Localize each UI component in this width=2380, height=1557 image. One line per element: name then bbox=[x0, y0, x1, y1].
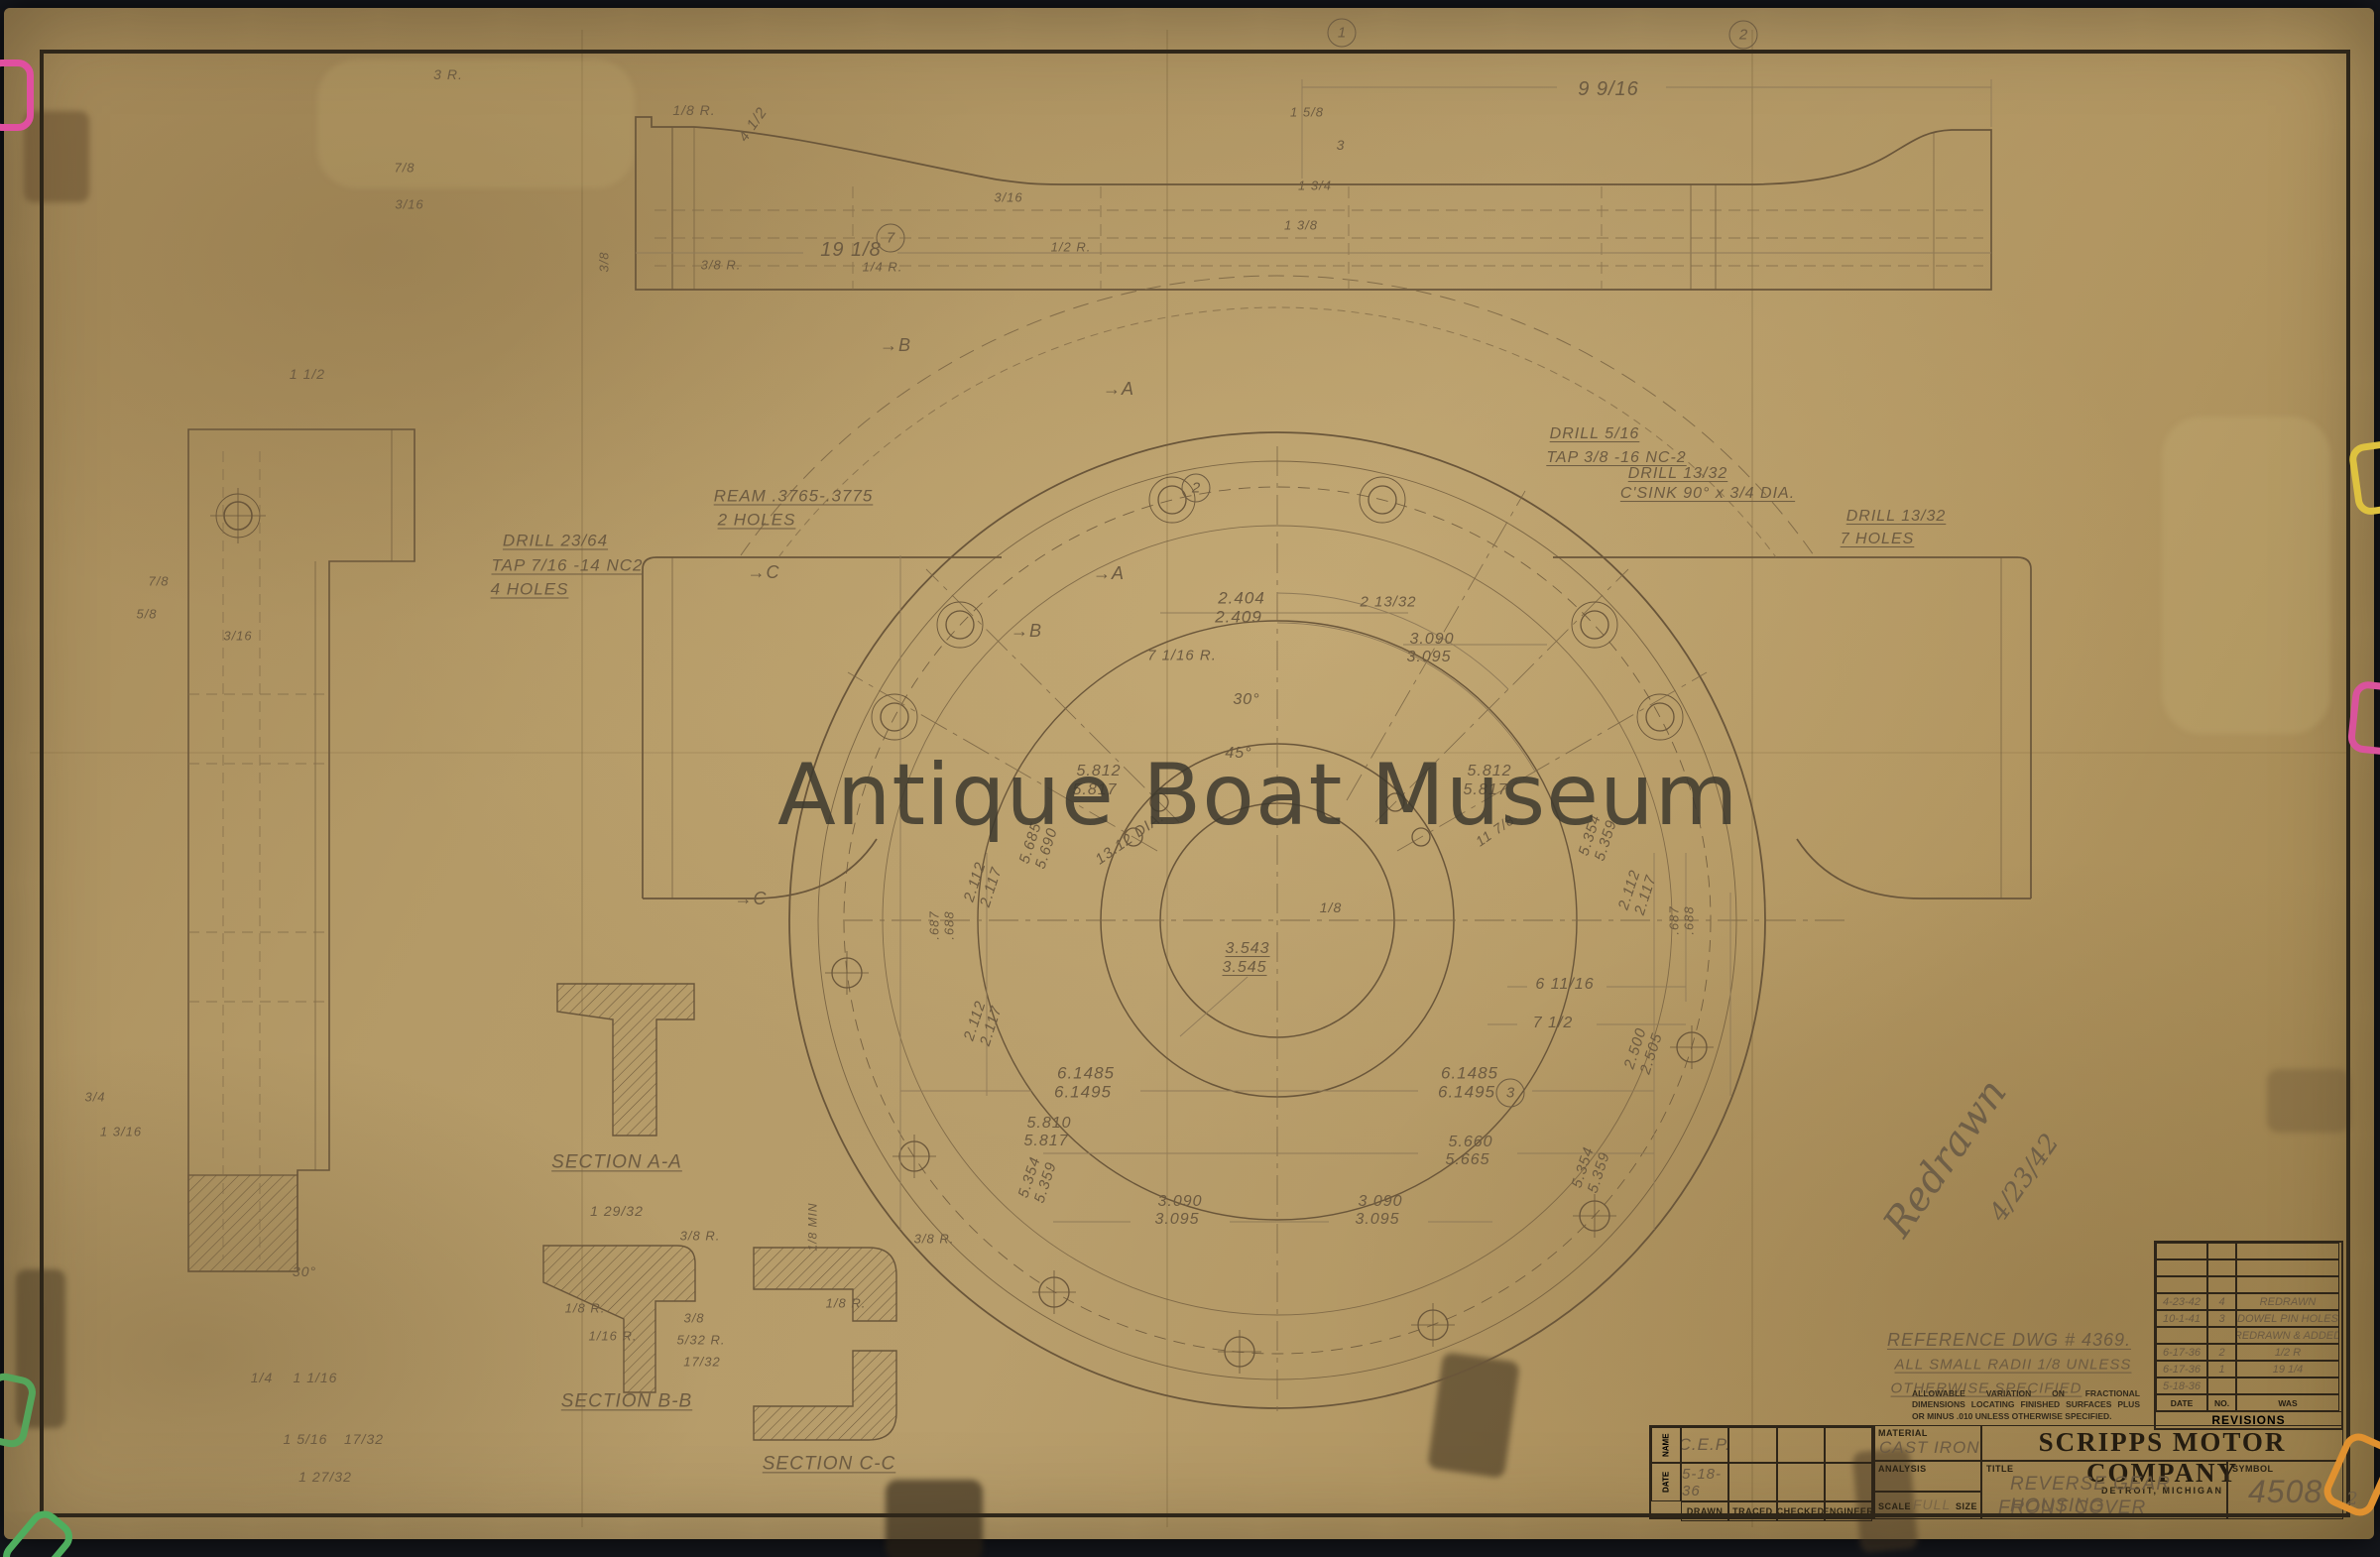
annotation-label: 5/8 bbox=[136, 608, 157, 623]
annotation-label: 1 1/16 bbox=[294, 1371, 338, 1386]
revision-cell: REDRAWN bbox=[2236, 1293, 2339, 1310]
annotation-label: →B bbox=[1011, 621, 1042, 641]
annotation-label: 1 3/8 bbox=[1284, 219, 1318, 234]
revision-cell bbox=[2156, 1259, 2207, 1276]
revision-cell bbox=[2236, 1276, 2339, 1293]
annotation-label: 3/16 bbox=[994, 191, 1022, 206]
annotation-label: 3 R. bbox=[433, 67, 463, 83]
revision-cell bbox=[2236, 1377, 2339, 1394]
balloon-reference: 2 bbox=[1182, 474, 1211, 503]
annotation-label: DRILL 5/16 bbox=[1550, 425, 1640, 443]
annotation-label: 1/2 R. bbox=[1051, 241, 1092, 256]
annotation-label: SECTION C-C bbox=[763, 1453, 896, 1474]
analysis-label: ANALYSIS bbox=[1878, 1464, 1927, 1474]
annotation-label: →A bbox=[1093, 563, 1125, 583]
annotation-label: .687 .688 bbox=[1667, 905, 1696, 934]
balloon-reference: 1 bbox=[1328, 19, 1357, 48]
section-c-c-detail bbox=[754, 1248, 896, 1440]
annotation-label: 2.404 bbox=[1218, 588, 1265, 607]
annotation-label: 1 5/16 bbox=[284, 1432, 328, 1448]
drawn-date: 5-18-36 bbox=[1681, 1463, 1728, 1501]
annotation-label: 1 27/32 bbox=[298, 1470, 352, 1486]
revision-cell: 3 bbox=[2207, 1310, 2236, 1327]
revision-cell: 6-17-36 bbox=[2156, 1344, 2207, 1361]
annotation-label: REAM .3765-.3775 bbox=[714, 486, 874, 505]
name-row-label: NAME bbox=[1651, 1427, 1681, 1463]
annotation-label: 1 1/2 bbox=[290, 367, 325, 383]
revision-header-cell: NO. bbox=[2207, 1394, 2236, 1411]
annotation-label: 1 29/32 bbox=[590, 1204, 644, 1220]
annotation-label: 3/16 bbox=[223, 630, 252, 645]
revision-cell bbox=[2207, 1259, 2236, 1276]
title-label: TITLE bbox=[1986, 1464, 2014, 1474]
annotation-label: REFERENCE DWG # 4369. bbox=[1887, 1330, 2131, 1350]
role-label-engineer: ENGINEER bbox=[1825, 1501, 1872, 1521]
date-row-label: DATE bbox=[1651, 1463, 1681, 1501]
revision-cell: 1/2 R bbox=[2236, 1344, 2339, 1361]
annotation-label: 1 3/16 bbox=[100, 1126, 142, 1140]
revision-cell bbox=[2236, 1243, 2339, 1259]
annotation-label: 17/32 bbox=[683, 1356, 721, 1371]
annotation-label: 3.090 bbox=[1157, 1193, 1202, 1211]
revision-row: 6-17-3621/2 R bbox=[2156, 1344, 2341, 1361]
role-label-drawn: DRAWN bbox=[1681, 1501, 1728, 1521]
balloon-reference: 2 bbox=[1729, 21, 1758, 50]
annotation-label: 1/8 bbox=[1320, 900, 1342, 916]
annotation-label: 7 1/2 bbox=[1533, 1015, 1574, 1032]
size-label: SIZE bbox=[1956, 1501, 1977, 1511]
paperclip-pink bbox=[0, 60, 34, 131]
watermark: Antique Boat Museum bbox=[777, 746, 1738, 845]
revision-cell bbox=[2207, 1377, 2236, 1394]
annotation-label: 3 bbox=[1337, 138, 1346, 154]
annotation-label: 1 5/8 bbox=[1290, 106, 1324, 121]
material-label: MATERIAL bbox=[1878, 1428, 1928, 1438]
revision-row bbox=[2156, 1243, 2341, 1259]
material-value: CAST IRON bbox=[1879, 1438, 1980, 1458]
front-view-wings bbox=[643, 557, 2031, 898]
section-a-a-detail bbox=[557, 984, 694, 1136]
revision-row: REDRAWN & ADDED bbox=[2156, 1327, 2341, 1344]
revision-cell: 1 bbox=[2207, 1361, 2236, 1377]
revision-cell bbox=[2156, 1276, 2207, 1293]
annotation-label: 2.409 bbox=[1215, 607, 1262, 626]
title-block-main: SCRIPPS MOTOR COMPANY DETROIT, MICHIGAN … bbox=[1981, 1425, 2343, 1519]
annotation-label: 6.1485 bbox=[1441, 1063, 1498, 1082]
revision-cell bbox=[2207, 1327, 2236, 1344]
annotation-label: 2 HOLES bbox=[718, 510, 796, 529]
revision-cell: 5-18-36 bbox=[2156, 1377, 2207, 1394]
annotation-label: 3/8 R. bbox=[701, 259, 742, 274]
revision-row: 5-18-36 bbox=[2156, 1377, 2341, 1394]
scale-label: SCALE bbox=[1878, 1501, 1911, 1511]
bolt-holes bbox=[825, 477, 1714, 1374]
front-view-dimension-lines bbox=[900, 555, 1730, 1230]
annotation-label: 5.817 bbox=[1023, 1133, 1068, 1150]
revisions-caption: REVISIONS bbox=[2156, 1411, 2341, 1428]
revision-header-cell: DATE bbox=[2156, 1394, 2207, 1411]
scale-value: FULL bbox=[1913, 1497, 1951, 1512]
annotation-label: DRILL 13/32 bbox=[1846, 508, 1947, 526]
annotation-label: 7/8 bbox=[148, 575, 169, 590]
revision-cell bbox=[2207, 1243, 2236, 1259]
revision-row bbox=[2156, 1276, 2341, 1293]
tolerance-note: ALLOWABLE VARIATION ON FRACTIONAL DIMENS… bbox=[1912, 1388, 2140, 1422]
annotation-label: DRILL 13/32 bbox=[1628, 465, 1728, 483]
annotation-label: DRILL 23/64 bbox=[503, 531, 608, 549]
annotation-label: 1/16 R. bbox=[589, 1330, 638, 1345]
annotation-label: 30° bbox=[1233, 691, 1259, 709]
revision-row: 4-23-424REDRAWN bbox=[2156, 1293, 2341, 1310]
revision-cell: DOWEL PIN HOLES bbox=[2236, 1310, 2339, 1327]
annotation-label: 1 3/4 bbox=[1298, 180, 1332, 194]
annotation-label: 5/32 R. bbox=[677, 1334, 726, 1349]
annotation-label: 1/4 R. bbox=[863, 261, 903, 276]
drawing-number: 4508 bbox=[2248, 1474, 2322, 1510]
annotation-label: TAP 7/16 -14 NC2 bbox=[491, 555, 643, 574]
annotation-label: 3/8 bbox=[598, 251, 613, 272]
drawn-by-initials: C.E.P. bbox=[1681, 1427, 1728, 1463]
section-b-b-detail bbox=[543, 1246, 695, 1392]
revisions-header-row: DATENO.WAS bbox=[2156, 1394, 2341, 1411]
annotation-label: 3.090 bbox=[1409, 631, 1454, 649]
role-label-checked: CHECKED bbox=[1777, 1501, 1825, 1521]
left-side-view bbox=[188, 429, 415, 1271]
annotation-label: 1/8 R. bbox=[565, 1302, 606, 1317]
revision-cell: 4 bbox=[2207, 1293, 2236, 1310]
annotation-label: →C bbox=[748, 562, 780, 582]
annotation-label: 6.1485 bbox=[1057, 1063, 1115, 1082]
revision-cell: 10-1-41 bbox=[2156, 1310, 2207, 1327]
annotation-label: 5.810 bbox=[1026, 1115, 1071, 1133]
balloon-reference: 3 bbox=[1496, 1079, 1525, 1108]
revision-cell bbox=[2156, 1243, 2207, 1259]
annotation-label: 1/8 R. bbox=[826, 1297, 867, 1312]
revision-cell: 19 1/4 bbox=[2236, 1361, 2339, 1377]
annotation-label: 7/8 bbox=[394, 162, 415, 177]
revision-cell bbox=[2156, 1327, 2207, 1344]
annotation-label: →B bbox=[880, 335, 911, 355]
annotation-label: SECTION B-B bbox=[561, 1390, 692, 1411]
revision-row: 10-1-413DOWEL PIN HOLES bbox=[2156, 1310, 2341, 1327]
annotation-label: 3.543 bbox=[1225, 940, 1269, 958]
annotation-label: SECTION A-A bbox=[551, 1151, 682, 1172]
annotation-label: 1/4 bbox=[251, 1371, 273, 1386]
left-side-hidden-lines bbox=[188, 451, 329, 1259]
annotation-label: 6 11/16 bbox=[1535, 976, 1594, 994]
revision-cell: 6-17-36 bbox=[2156, 1361, 2207, 1377]
balloon-reference: 7 bbox=[877, 224, 905, 253]
revision-cell bbox=[2236, 1259, 2339, 1276]
revision-header-cell: WAS bbox=[2236, 1394, 2339, 1411]
revision-cell: 4-23-42 bbox=[2156, 1293, 2207, 1310]
drafting-signoff-table: NAME C.E.P. DATE 5-18-36 DRAWN TRACED CH… bbox=[1649, 1425, 1874, 1519]
annotation-label: 5.665 bbox=[1445, 1151, 1489, 1169]
annotation-label: 5.660 bbox=[1448, 1134, 1492, 1151]
revision-row: 6-17-36119 1/4 bbox=[2156, 1361, 2341, 1377]
annotation-label: 17/32 bbox=[344, 1432, 384, 1448]
role-label-traced: TRACED bbox=[1728, 1501, 1776, 1521]
annotation-label: 9 9/16 bbox=[1578, 78, 1639, 100]
drawing-title-line2: FRONT COVER bbox=[1998, 1497, 2146, 1519]
annotation-label: 3.545 bbox=[1222, 959, 1266, 977]
annotation-label: 3.095 bbox=[1154, 1211, 1199, 1229]
annotation-label: 19 1/8 bbox=[820, 239, 882, 261]
annotation-label: 2 13/32 bbox=[1360, 595, 1416, 612]
symbol-label: SYMBOL bbox=[2232, 1464, 2274, 1474]
material-column: MATERIAL CAST IRON ANALYSIS SCALE FULL S… bbox=[1874, 1425, 1981, 1519]
annotation-label: 1/8 MIN bbox=[806, 1202, 819, 1251]
annotation-label: 1/8 R. bbox=[672, 103, 715, 119]
annotation-label: 7 HOLES bbox=[1841, 531, 1915, 548]
annotation-label: C'SINK 90° x 3/4 DIA. bbox=[1620, 485, 1795, 503]
annotation-label: 3.095 bbox=[1355, 1211, 1399, 1229]
annotation-label: 3.095 bbox=[1406, 649, 1451, 666]
annotation-label: 4 HOLES bbox=[491, 579, 569, 598]
annotation-label: 6.1495 bbox=[1054, 1082, 1112, 1101]
annotation-label: 30° bbox=[293, 1264, 316, 1280]
annotation-label: ALL SMALL RADII 1/8 UNLESS bbox=[1895, 1358, 2132, 1375]
annotation-label: →C bbox=[735, 889, 768, 908]
annotation-label: 3/8 bbox=[683, 1312, 704, 1327]
annotation-label: 3/4 bbox=[84, 1091, 105, 1106]
annotation-label: →A bbox=[1103, 379, 1134, 399]
revision-row bbox=[2156, 1259, 2341, 1276]
revisions-table: 4-23-424REDRAWN10-1-413DOWEL PIN HOLESRE… bbox=[2154, 1241, 2343, 1430]
annotation-label: 7 1/16 R. bbox=[1147, 649, 1217, 665]
revision-cell: 2 bbox=[2207, 1344, 2236, 1361]
scanned-blueprint-photo: 3 R.7/83/161/8 R.4 1/23/83/8 R.1/4 R.3/1… bbox=[0, 0, 2380, 1557]
annotation-label: 3.090 bbox=[1358, 1193, 1402, 1211]
revision-cell: REDRAWN & ADDED bbox=[2236, 1327, 2339, 1344]
angle-dimension-arcs bbox=[1277, 593, 1535, 772]
top-elevation-view bbox=[636, 117, 1991, 290]
annotation-label: 3/8 R. bbox=[680, 1230, 721, 1245]
annotation-label: .687 .688 bbox=[927, 910, 956, 939]
revision-cell bbox=[2207, 1276, 2236, 1293]
annotation-label: 6.1495 bbox=[1438, 1082, 1495, 1101]
annotation-label: 3/8 R. bbox=[914, 1233, 955, 1248]
annotation-label: 3/16 bbox=[395, 198, 423, 213]
